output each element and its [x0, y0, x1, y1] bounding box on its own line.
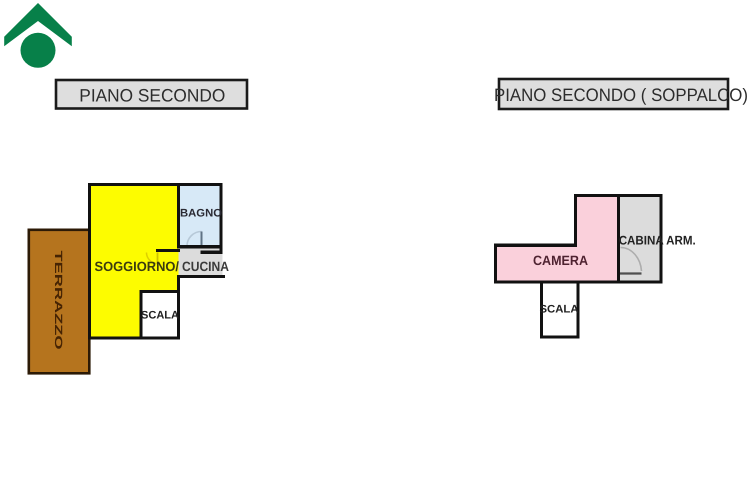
svg-text:PIANO SECONDO ( SOPPALCO): PIANO SECONDO ( SOPPALCO) — [494, 85, 748, 105]
svg-text:CUCINA: CUCINA — [182, 259, 229, 274]
svg-text:BAGNO: BAGNO — [180, 208, 222, 220]
svg-text:CAMERA: CAMERA — [533, 253, 588, 268]
svg-text:PIANO SECONDO: PIANO SECONDO — [79, 85, 225, 105]
svg-text:SCALA: SCALA — [540, 304, 579, 316]
svg-text:TERRAZZO: TERRAZZO — [52, 251, 64, 350]
svg-text:CABINA ARM.: CABINA ARM. — [619, 234, 696, 248]
svg-text:SOGGIORNO/: SOGGIORNO/ — [95, 259, 180, 274]
svg-text:SCALA: SCALA — [141, 310, 179, 322]
